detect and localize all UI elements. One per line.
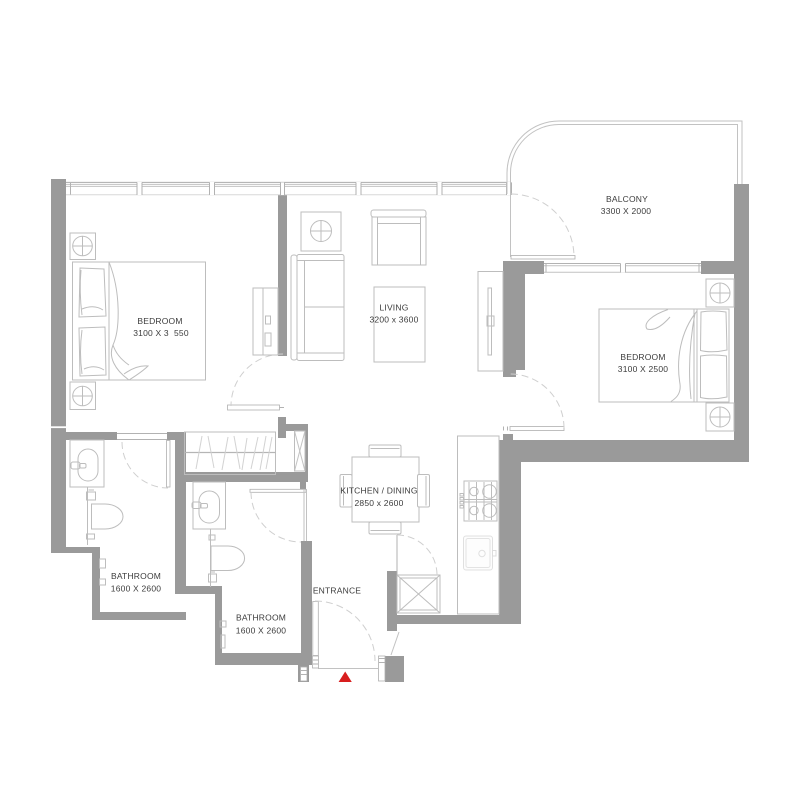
svg-text:BEDROOM: BEDROOM xyxy=(620,352,665,362)
svg-text:BATHROOM: BATHROOM xyxy=(236,613,286,623)
svg-text:2850 x 2600: 2850 x 2600 xyxy=(355,498,404,508)
svg-text:LIVING: LIVING xyxy=(379,303,408,313)
svg-text:3100 X 3 550: 3100 X 3 550 xyxy=(133,328,189,338)
svg-text:3200 x 3600: 3200 x 3600 xyxy=(370,315,419,325)
svg-text:ENTRANCE: ENTRANCE xyxy=(313,586,361,596)
svg-text:3100 X 2500: 3100 X 2500 xyxy=(618,364,668,374)
svg-text:1600 X 2600: 1600 X 2600 xyxy=(111,584,161,594)
svg-text:BEDROOM: BEDROOM xyxy=(137,316,182,326)
svg-text:3300 X 2000: 3300 X 2000 xyxy=(601,206,651,216)
svg-text:1600 X 2600: 1600 X 2600 xyxy=(236,626,286,636)
svg-text:KITCHEN / DINING: KITCHEN / DINING xyxy=(340,486,417,496)
svg-text:BATHROOM: BATHROOM xyxy=(111,571,161,581)
svg-text:BALCONY: BALCONY xyxy=(606,194,648,204)
